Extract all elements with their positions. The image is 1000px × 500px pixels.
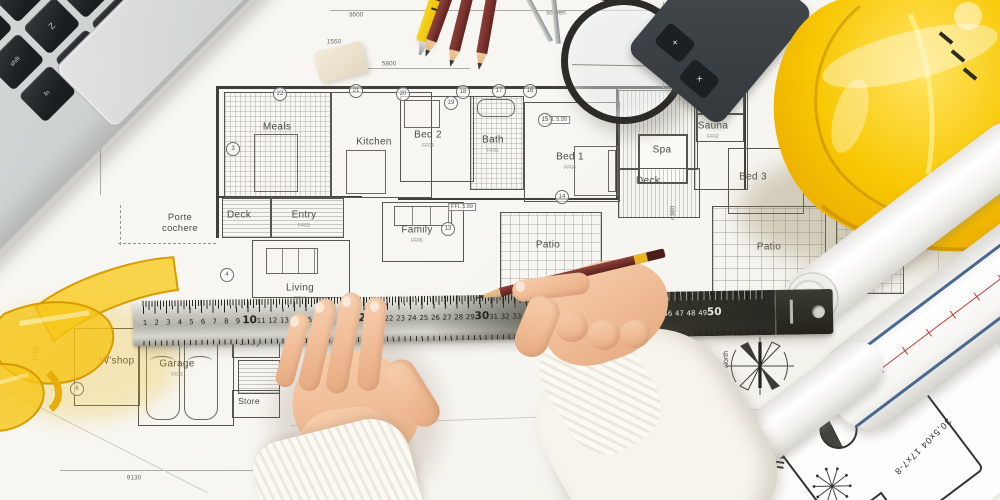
- ruler-number: 9: [236, 317, 241, 325]
- circled-ref: 14: [555, 190, 569, 204]
- ruler-number: 28: [454, 313, 463, 321]
- ruler-number: 2: [154, 319, 159, 327]
- calculator-key: +: [654, 22, 697, 64]
- ruler-number: 12: [268, 317, 277, 325]
- room-label: Store: [238, 396, 260, 406]
- ruler-number: 8: [224, 317, 229, 325]
- safety-helmet: [700, 0, 1000, 260]
- ruler-number: 23: [396, 314, 405, 322]
- ruler-end-cap: [775, 289, 834, 335]
- ruler-hole: [812, 305, 825, 318]
- ruler-number: 24: [408, 314, 417, 322]
- ruler-number: 29: [466, 313, 475, 321]
- dim-text: 1010: [789, 485, 803, 492]
- ruler-number: 11: [257, 317, 266, 325]
- room-label: Patio: [536, 240, 560, 251]
- right-knuckle: [588, 320, 620, 350]
- room-label: Deck: [636, 176, 660, 187]
- room-sublabel: FF04: [564, 165, 576, 171]
- ruler-number: 25: [419, 314, 428, 322]
- pencil-lead: [474, 294, 484, 300]
- ruler-number: 31: [489, 313, 498, 321]
- room-label: Spa: [653, 145, 672, 156]
- dim-text: 4380: [670, 206, 677, 220]
- ruler-number: 48: [687, 309, 696, 317]
- calculator-key-label: +: [669, 37, 681, 49]
- ruler-number: 47: [675, 309, 684, 317]
- ruler-number: 26: [431, 314, 440, 322]
- ruler-number: 1: [143, 319, 148, 327]
- desk-scene: Meals Kitchen Bed 2 FF04 Bath FF01 Bed 1…: [0, 0, 1000, 500]
- right-knuckle: [556, 312, 588, 342]
- ruler-number: 50: [707, 306, 722, 318]
- ruler-number: 7: [212, 318, 217, 326]
- right-knuckle: [620, 320, 650, 348]
- ruler-number: 4: [178, 318, 183, 326]
- ruler-number: 6: [201, 318, 206, 326]
- ruler-number: 32: [501, 313, 510, 321]
- ruler-number: 3: [166, 318, 171, 326]
- ruler-number: 5: [189, 318, 194, 326]
- ruler-number: 10: [242, 314, 257, 326]
- ruler-number: 33: [512, 312, 521, 320]
- room-label: Bed 1: [556, 152, 584, 163]
- bed1-pillow: [608, 150, 616, 192]
- ruler-number: 13: [280, 316, 289, 324]
- ruler-brand-mark: [790, 300, 793, 324]
- dim-text: 9130: [127, 475, 141, 482]
- ruler-number: 27: [443, 314, 452, 322]
- ruler-number: 49: [698, 309, 707, 317]
- ruler-number: 30: [475, 310, 490, 322]
